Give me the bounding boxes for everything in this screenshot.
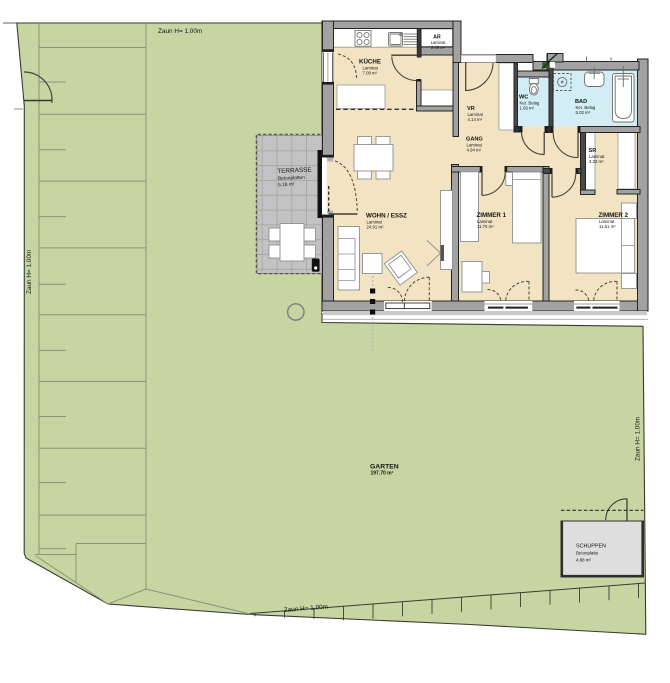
svg-text:7.09 m²: 7.09 m²: [363, 71, 378, 76]
svg-text:3.23 m²: 3.23 m²: [589, 159, 604, 164]
svg-text:5.18 m²: 5.18 m²: [278, 182, 295, 189]
svg-text:4.14 m²: 4.14 m²: [468, 117, 483, 122]
svg-text:Zaun H= 1.00m: Zaun H= 1.00m: [158, 28, 202, 35]
svg-text:TERRASSE: TERRASSE: [277, 167, 312, 175]
svg-text:4.88 m²: 4.88 m²: [576, 558, 591, 563]
svg-text:11.61 m²: 11.61 m²: [599, 224, 616, 229]
svg-text:197.70 m²: 197.70 m²: [371, 471, 394, 477]
svg-text:Betonplatte: Betonplatte: [576, 551, 599, 556]
svg-text:ZIMMER 2: ZIMMER 2: [599, 212, 629, 219]
svg-text:KÜCHE: KÜCHE: [359, 59, 381, 66]
svg-text:11.70 m²: 11.70 m²: [477, 224, 494, 229]
svg-text:2.46 m²: 2.46 m²: [431, 45, 446, 50]
svg-text:WOHN / ESSZ: WOHN / ESSZ: [366, 213, 407, 220]
svg-text:1.66 m²: 1.66 m²: [520, 106, 535, 111]
svg-text:24.91 m²: 24.91 m²: [367, 225, 385, 230]
svg-text:GARTEN: GARTEN: [370, 463, 399, 470]
svg-text:4.94 m²: 4.94 m²: [467, 148, 482, 153]
svg-text:SCHUPPEN: SCHUPPEN: [576, 544, 606, 550]
svg-text:ZIMMER 1: ZIMMER 1: [477, 212, 507, 219]
svg-text:Zaun H= 1.00m: Zaun H= 1.00m: [635, 417, 642, 461]
svg-text:5.02 m²: 5.02 m²: [576, 110, 591, 115]
svg-text:Zaun H= 1.00m: Zaun H= 1.00m: [26, 250, 33, 294]
svg-text:Betonplatten: Betonplatten: [278, 175, 306, 182]
